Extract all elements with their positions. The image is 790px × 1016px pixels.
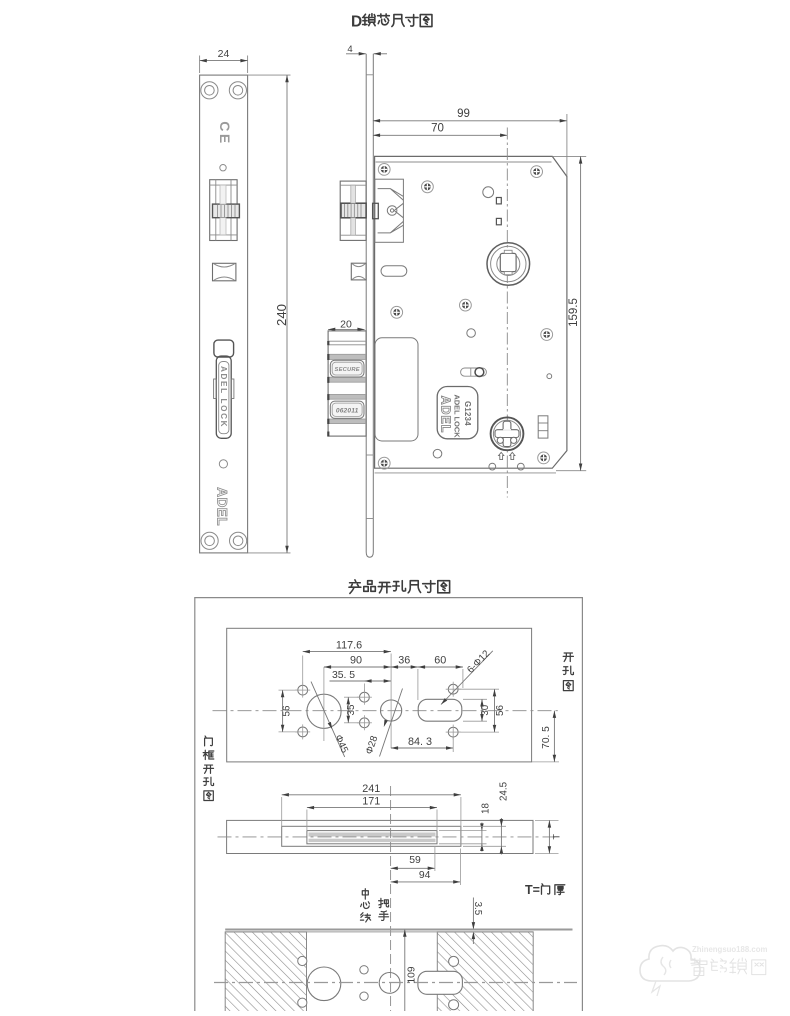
- svg-text:ADEL LOCK: ADEL LOCK: [453, 395, 462, 439]
- svg-text:241: 241: [362, 783, 380, 795]
- svg-text:159.5: 159.5: [568, 298, 580, 327]
- svg-text:171: 171: [362, 796, 380, 808]
- svg-text:36: 36: [398, 655, 410, 667]
- svg-text:CE: CE: [217, 121, 233, 145]
- svg-text:Zhinengsuo188.com: Zhinengsuo188.com: [692, 945, 767, 954]
- svg-text:24.5: 24.5: [499, 781, 510, 801]
- svg-text:70. 5: 70. 5: [541, 726, 552, 749]
- svg-text:60: 60: [434, 655, 446, 667]
- svg-text:ADEL: ADEL: [439, 396, 453, 434]
- svg-text:ADEL LOCK: ADEL LOCK: [219, 366, 228, 428]
- svg-text:59: 59: [409, 855, 421, 866]
- svg-text:T=: T=: [525, 883, 540, 897]
- svg-text:3.5: 3.5: [472, 902, 483, 916]
- svg-text:062011: 062011: [336, 407, 359, 414]
- svg-text:117.6: 117.6: [336, 639, 362, 651]
- svg-text:ADEL: ADEL: [215, 487, 230, 526]
- svg-text:24: 24: [218, 48, 230, 60]
- svg-text:20: 20: [340, 318, 352, 330]
- svg-text:35: 35: [346, 704, 357, 715]
- svg-text:SECURE: SECURE: [335, 367, 361, 373]
- svg-text:99: 99: [457, 108, 470, 120]
- svg-text:90: 90: [350, 655, 362, 667]
- svg-text:30: 30: [480, 704, 491, 715]
- svg-text:35. 5: 35. 5: [332, 670, 355, 681]
- svg-text:18: 18: [480, 803, 491, 814]
- svg-text:109: 109: [406, 966, 417, 983]
- svg-text:94: 94: [419, 870, 431, 881]
- svg-text:D: D: [351, 14, 362, 31]
- svg-text:240: 240: [274, 304, 289, 326]
- svg-text:56: 56: [495, 705, 506, 716]
- svg-text:G1234: G1234: [463, 401, 472, 426]
- svg-text:T: T: [552, 834, 562, 840]
- svg-text:84. 3: 84. 3: [408, 736, 432, 748]
- svg-text:70: 70: [431, 123, 444, 135]
- svg-text:56: 56: [281, 705, 292, 716]
